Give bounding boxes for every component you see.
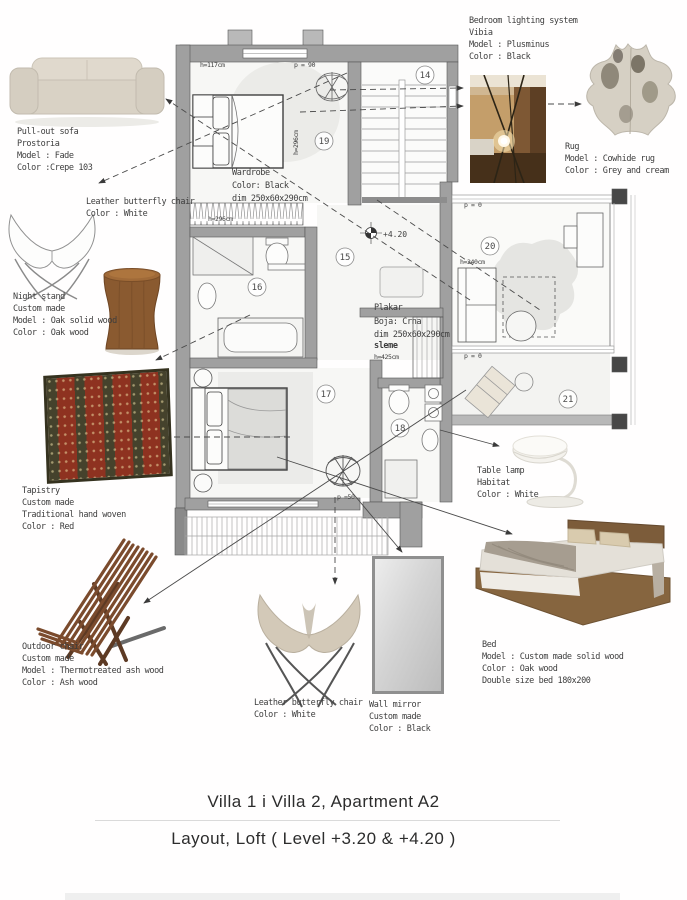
dim-h296-vert: h=296cm (292, 130, 300, 155)
label-line: Custom made (13, 303, 117, 315)
pull-out-sofa-label: Pull-out sofaProstoriaModel : FadeColor … (17, 126, 92, 174)
room-circle-21: 21 (559, 390, 577, 408)
label-line: Double size bed 180x200 (482, 675, 624, 687)
svg-text:dim 250x60x290cm: dim 250x60x290cm (374, 330, 450, 340)
label-line: Custom made (369, 711, 430, 723)
label-line: Outdoor chair (22, 641, 164, 653)
svg-text:21: 21 (563, 395, 574, 405)
svg-text:sleme: sleme (374, 341, 398, 351)
bed-label: BedModel : Custom made solid woodColor :… (482, 639, 624, 687)
butterfly-chair-sketch (5, 205, 100, 305)
label-line: Custom made (22, 653, 164, 665)
label-line: Color : White (477, 489, 538, 501)
cowhide-rug-image (578, 40, 683, 143)
label-line: Night stand (13, 291, 117, 303)
tapistry-image (43, 368, 173, 484)
label-line: Bed (482, 639, 624, 651)
bed-image (468, 510, 673, 635)
svg-text:16: 16 (252, 283, 263, 293)
room-circle-19: 19 (315, 132, 333, 150)
label-line: Prostoria (17, 138, 92, 150)
label-line: Model : Thermotreated ash wood (22, 665, 164, 677)
label-line: Wall mirror (369, 699, 430, 711)
svg-text:19: 19 (319, 137, 330, 147)
night-stand-label: Night standCustom madeModel : Oak solid … (13, 291, 117, 339)
label-line: Traditional hand woven (22, 509, 126, 521)
level-label: +4.20 (383, 230, 407, 239)
lighting-photo (470, 75, 546, 183)
wall-mirror-label: Wall mirrorCustom madeColor : Black (369, 699, 430, 735)
wall-mirror-image (372, 556, 444, 694)
label-line: Color : Grey and cream (565, 165, 669, 177)
dim-p50: p =50 (337, 493, 355, 501)
svg-text:17: 17 (321, 390, 332, 400)
room-circle-16: 16 (248, 278, 266, 296)
label-line: Color : Oak wood (13, 327, 117, 339)
room-circle-18: 18 (391, 419, 409, 437)
title-divider (95, 820, 560, 821)
svg-text:h=425cm: h=425cm (374, 353, 399, 361)
room-circle-14: 14 (416, 66, 434, 84)
bottom-edge-artifact (65, 893, 620, 900)
board-title: Villa 1 i Villa 2, Apartment A2 (0, 792, 647, 812)
label-line: Leather butterfly chair (86, 196, 195, 208)
room-circle-15: 15 (336, 248, 354, 266)
label-line: Color :Crepe 103 (17, 162, 92, 174)
label-line: Color : White (254, 709, 363, 721)
label-line: Pull-out sofa (17, 126, 92, 138)
svg-text:Plakar: Plakar (374, 303, 403, 313)
butterfly-chair-image (252, 583, 367, 713)
pull-out-sofa-image (8, 52, 166, 130)
dim-h117: h=117cm (200, 61, 225, 69)
label-line: Vibia (469, 27, 578, 39)
label-line: Rug (565, 141, 669, 153)
svg-text:Wardrobe: Wardrobe (232, 168, 270, 178)
svg-text:dim 250x60x290cm: dim 250x60x290cm (232, 194, 308, 204)
butterfly-bottom-label: Leather butterfly chairColor : White (254, 697, 363, 721)
label-line: Model : Fade (17, 150, 92, 162)
table-lamp-label: Table lampHabitatColor : White (477, 465, 538, 501)
label-line: Color : White (86, 208, 195, 220)
wardrobe-hatch (190, 203, 303, 225)
presentation-board: +4.20 14 15 16 17 18 19 20 21 h=117cm p … (0, 0, 687, 900)
label-line: Bedroom lighting system (469, 15, 578, 27)
label-line: Tapistry (22, 485, 126, 497)
label-line: Color : Black (369, 723, 430, 735)
dim-p90: p = 90 (294, 61, 316, 69)
dim-p0-top: p = 0 (464, 201, 482, 209)
svg-text:Color: Black: Color: Black (232, 181, 289, 191)
label-line: Model : Plusminus (469, 39, 578, 51)
label-line: Color : Black (469, 51, 578, 63)
label-line: Model : Oak solid wood (13, 315, 117, 327)
outdoor-chair-label: Outdoor chairCustom madeModel : Thermotr… (22, 641, 164, 689)
svg-text:Boja: Crna: Boja: Crna (374, 317, 421, 327)
dim-h296-strip: h=296cm (208, 215, 233, 223)
label-line: Color : Red (22, 521, 126, 533)
room-circle-17: 17 (317, 385, 335, 403)
label-line: Color : Ash wood (22, 677, 164, 689)
label-line: Color : Oak wood (482, 663, 624, 675)
label-line: Habitat (477, 477, 538, 489)
tapistry-label: TapistryCustom madeTraditional hand wove… (22, 485, 126, 533)
label-line: Model : Custom made solid wood (482, 651, 624, 663)
svg-text:18: 18 (395, 424, 406, 434)
room-circle-20: 20 (481, 237, 499, 255)
board-subtitle: Layout, Loft ( Level +3.20 & +4.20 ) (0, 829, 627, 849)
rug-label: RugModel : Cowhide rugColor : Grey and c… (565, 141, 669, 177)
svg-text:14: 14 (420, 71, 431, 81)
svg-text:20: 20 (485, 242, 496, 252)
label-line: Leather butterfly chair (254, 697, 363, 709)
svg-text:15: 15 (340, 253, 351, 263)
label-line: Custom made (22, 497, 126, 509)
lighting-system-label: Bedroom lighting systemVibiaModel : Plus… (469, 15, 578, 63)
butterfly-top-label: Leather butterfly chairColor : White (86, 196, 195, 220)
dim-p0-bottom: p = 0 (464, 352, 482, 360)
label-line: Table lamp (477, 465, 538, 477)
label-line: Model : Cowhide rug (565, 153, 669, 165)
